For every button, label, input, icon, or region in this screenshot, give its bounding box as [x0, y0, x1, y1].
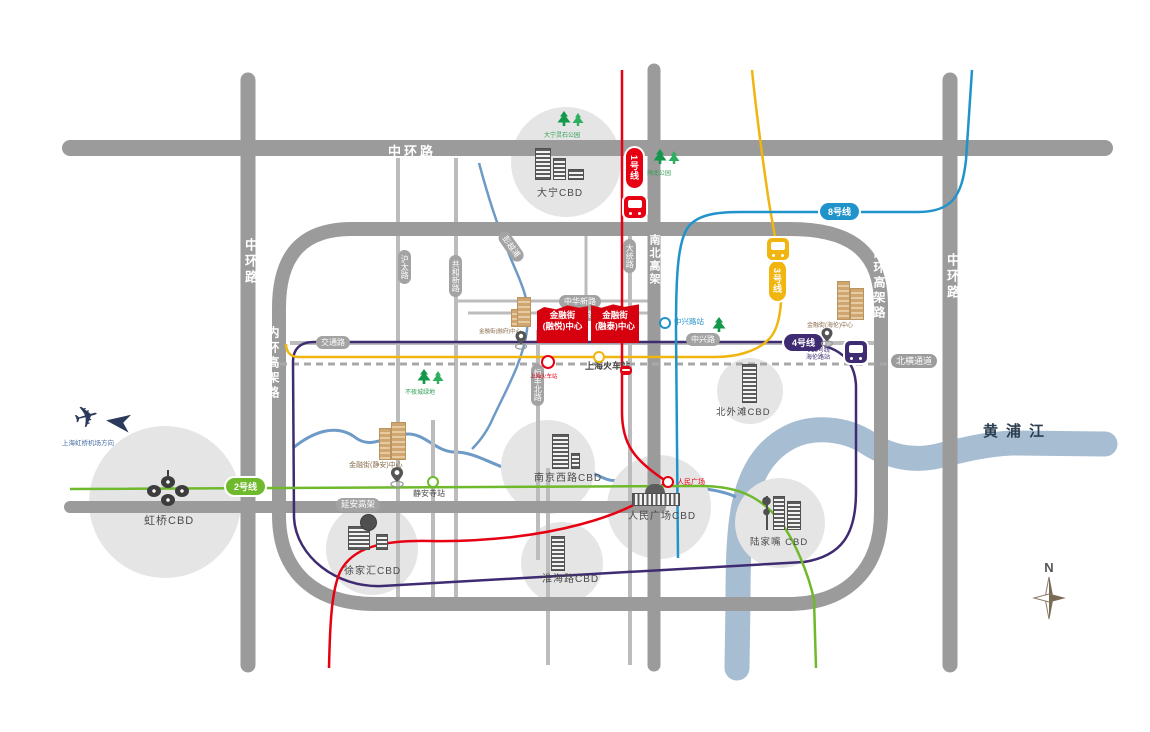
zhabei-park-label: 闸北公园 [647, 168, 671, 177]
zhongxinglu-station-label: 中兴路站 [674, 316, 704, 327]
line1-badge: 1号线 [626, 148, 643, 188]
jingan-building-2 [391, 422, 406, 460]
hutai-road-pill: 沪太路 [398, 250, 411, 284]
line3-badge: 3号线 [769, 261, 786, 301]
rongfu-pin-icon [514, 330, 528, 350]
xujiahui-buildings-icon [348, 518, 392, 550]
yanan-gaojia-label: 延安高架 [336, 498, 380, 512]
lujiazui-cbd-label: 陆家嘴 CBD [750, 534, 808, 548]
nanjingxilu-building-icon [552, 434, 582, 469]
location-map: 中环路 中环路 中环路 内环高架路 内环高架路 南北高架 延安高架 北横通道 交… [0, 0, 1150, 732]
jingan-pin-icon [389, 466, 405, 488]
zhonghuan-left-label: 中环路 [241, 238, 260, 286]
xujiahui-cbd-label: 徐家汇CBD [344, 562, 401, 577]
jingansi-station-label: 静安寺站 [413, 488, 445, 499]
huangpu-river-label: 黄浦江 [983, 420, 1052, 441]
compass: N [1030, 560, 1068, 626]
jingan-building-1 [379, 428, 391, 460]
jiaotong-road-pill: 交通路 [316, 336, 350, 349]
daning-buildings-icon [535, 148, 586, 180]
hailun-station-label: 4/10号线 海伦路站 [806, 348, 830, 362]
line8-badge: 8号线 [820, 203, 859, 220]
beiwaitan-cbd-label: 北外滩CBD [716, 404, 771, 418]
renmin-guangchang-station-label: 人民广场 [677, 477, 705, 487]
block-b-line1: 金融街 [602, 310, 628, 320]
nanbei-gaojia-label: 南北高架 [646, 234, 662, 286]
line1-mini-station-icon [620, 366, 632, 375]
zhonghuan-right-label: 中环路 [943, 253, 962, 301]
project-block-rongtai: 金融街 (融泰)中心 [591, 301, 639, 343]
daning-park-label: 大宁灵石公园 [544, 130, 580, 139]
hongqiao-cbd-label: 虹桥CBD [144, 512, 194, 528]
nanjingxilu-cbd-label: 南京西路CBD [534, 469, 602, 484]
line3-metro-icon [767, 238, 789, 260]
renmin-cbd-label: 人民广场CBD [628, 507, 696, 522]
neihuan-right-label: 内环高架路 [871, 246, 888, 321]
beiwaitan-building-icon [742, 364, 759, 403]
block-a-line1: 金融街 [550, 310, 576, 320]
compass-needle-icon [1032, 575, 1066, 621]
zhonghuan-top-label: 中环路 [388, 141, 436, 160]
hongqiao-flower-icon [146, 476, 190, 508]
lujiazui-buildings-icon [762, 496, 803, 530]
zhabei-park-trees-icon [652, 148, 682, 167]
hengfengbei-road-pill: 恒丰北路 [531, 364, 544, 406]
hailun-pin-icon [820, 327, 834, 347]
line2-badge: 2号线 [226, 478, 265, 495]
line4-metro-icon [845, 341, 867, 363]
rongfu-building-annex [511, 309, 518, 327]
renmin-museum-icon [632, 484, 678, 506]
datong-road-pill: 大统路 [623, 239, 636, 273]
hailun-building-1 [837, 281, 850, 320]
buyecheng-green-label: 不夜城绿地 [405, 387, 435, 396]
zhongxinglu-station-icon [659, 317, 671, 329]
line1-metro-icon [624, 196, 646, 218]
daning-cbd-label: 大宁CBD [537, 184, 583, 199]
hailun-station-text: 海伦路站 [806, 355, 830, 361]
railway-metro-icon [541, 355, 555, 369]
project-block-rongyue: 金融街 (融悦)中心 [537, 303, 588, 343]
huaihai-building-icon [551, 536, 567, 571]
park-tree-icon [711, 316, 729, 335]
daning-park-trees-icon [556, 110, 586, 129]
railway-tiny-label: 上海火车站 [530, 372, 558, 380]
rongfu-building [517, 297, 531, 327]
jingansi-station-icon [427, 476, 439, 488]
beiheng-tunnel-label: 北横通道 [891, 354, 937, 368]
compass-n-label: N [1030, 560, 1068, 575]
buyecheng-green-trees-icon [416, 368, 446, 387]
neihuan-left-label: 内环高架路 [265, 326, 282, 401]
block-a-line2: (融悦)中心 [543, 321, 583, 331]
line3-railway-station-icon [593, 351, 605, 363]
gonghexin-road-pill: 共和新路 [449, 255, 462, 297]
hailun-lines-text: 4/10号线 [806, 348, 830, 354]
huaihai-cbd-label: 淮海路CBD [542, 570, 599, 585]
airport-direction-label: 上海虹桥机场方向 [62, 437, 114, 447]
hailun-building-2 [850, 288, 864, 320]
block-b-line2: (融泰)中心 [595, 321, 635, 331]
